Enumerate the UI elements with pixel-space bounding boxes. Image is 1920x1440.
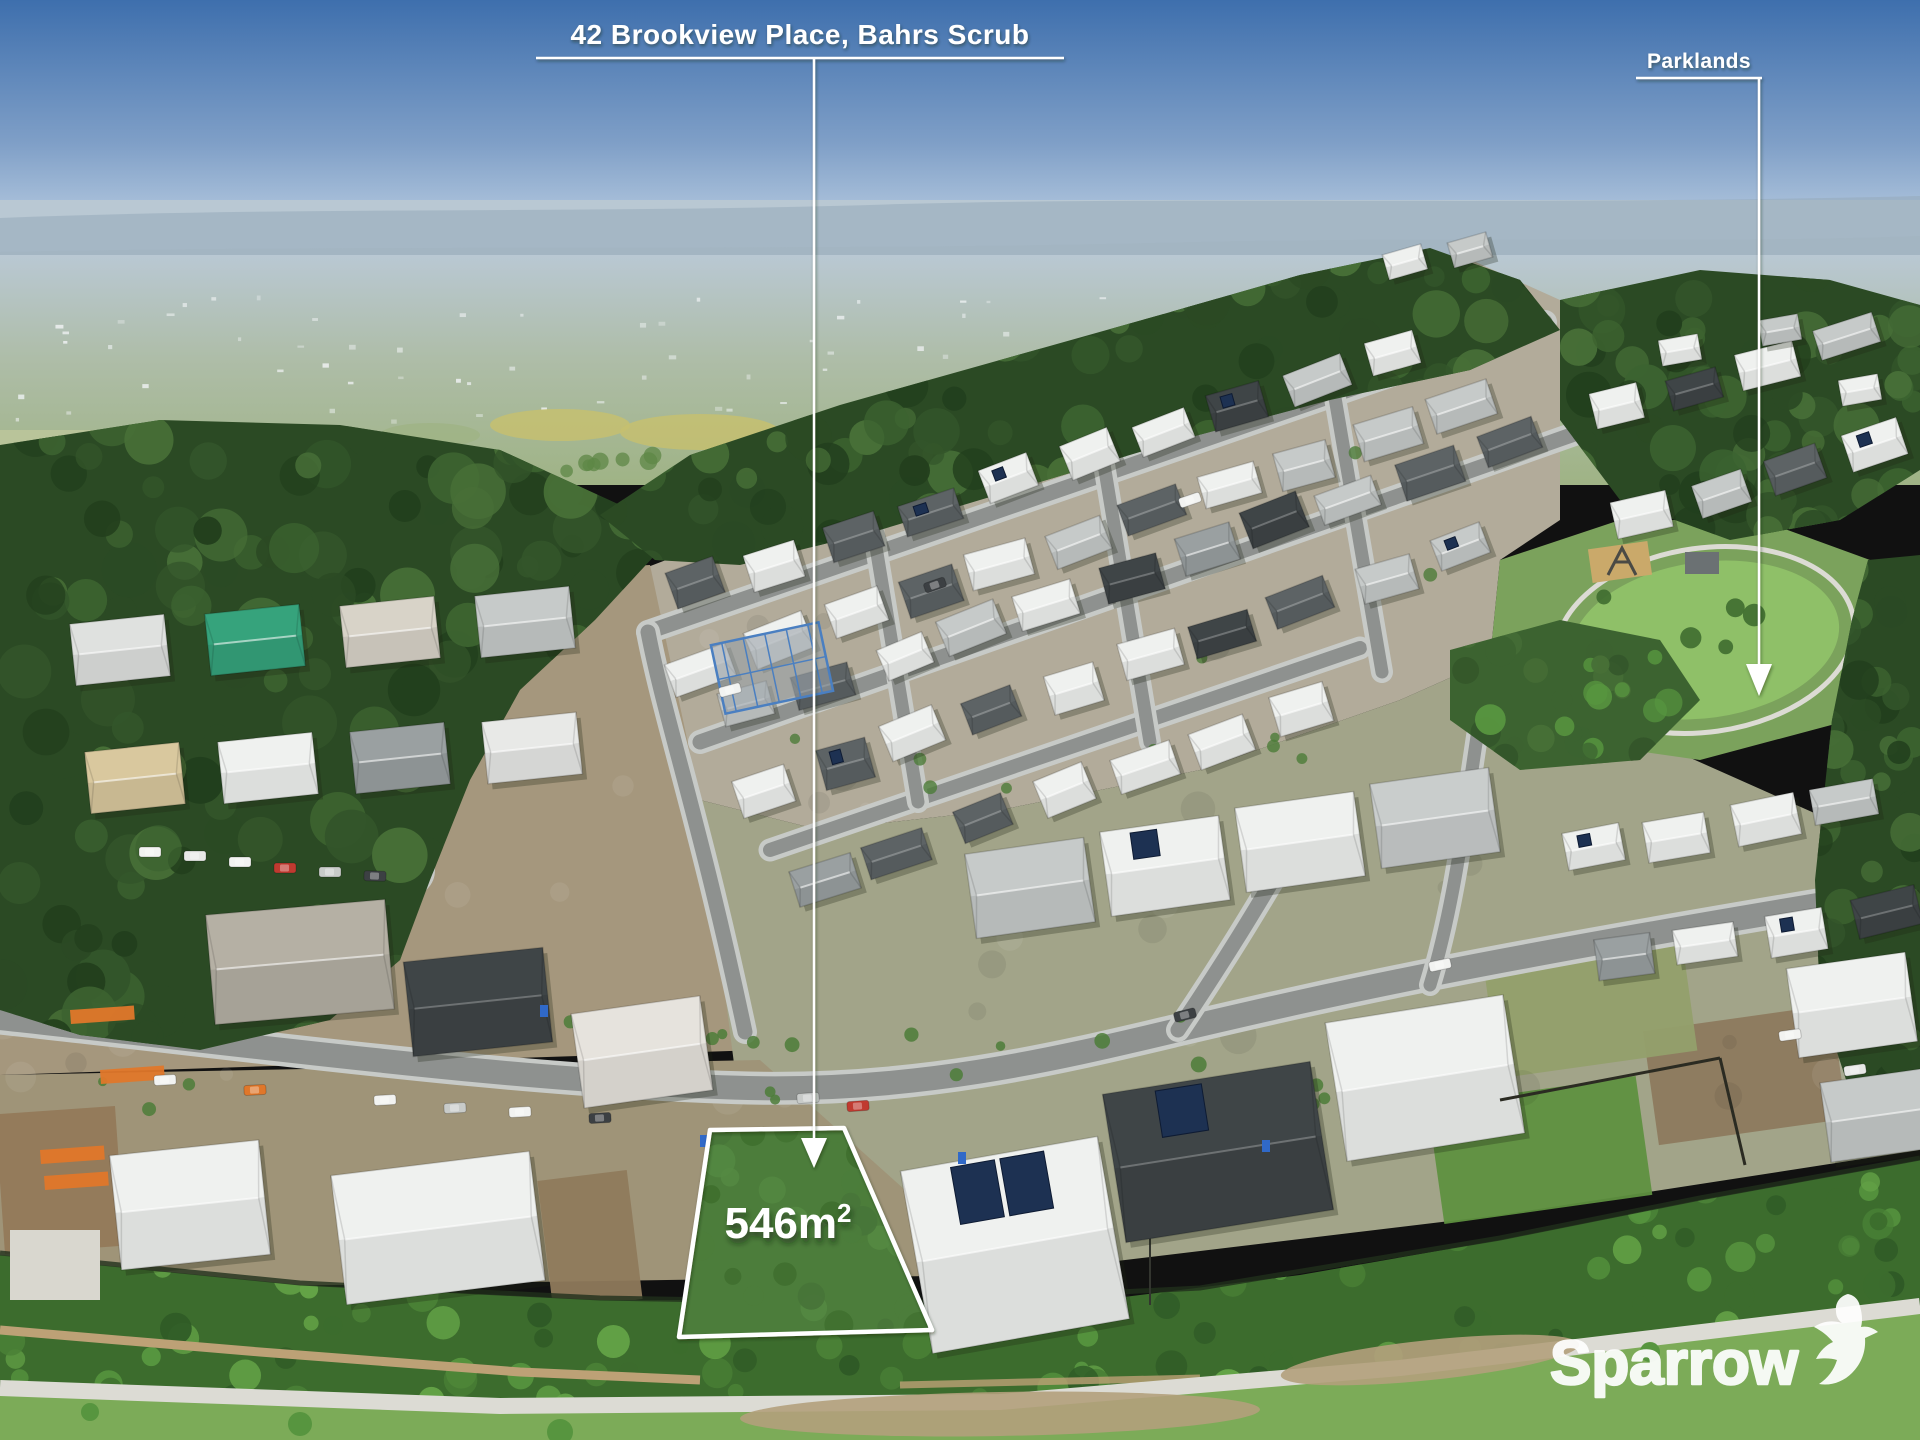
lot-area-label: 546m2 (724, 1198, 851, 1248)
aerial-photograph: 42 Brookview Place, Bahrs Scrub Parkland… (0, 0, 1920, 1440)
sparrow-logo-text: Sparrow (1550, 1329, 1799, 1398)
listing-photo: 42 Brookview Place, Bahrs Scrub Parkland… (0, 0, 1920, 1440)
parklands-label: Parklands (1647, 50, 1751, 73)
property-address-label: 42 Brookview Place, Bahrs Scrub (570, 19, 1029, 50)
